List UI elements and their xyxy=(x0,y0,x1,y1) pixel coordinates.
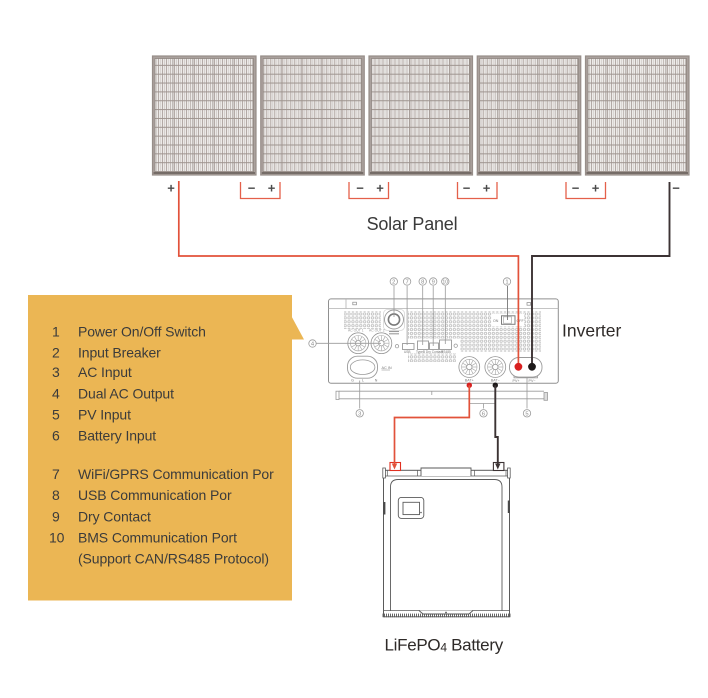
svg-text:USB: USB xyxy=(404,350,411,354)
svg-text:PV−: PV− xyxy=(529,379,536,383)
svg-text:TypeB Dry Contact: TypeB Dry Contact xyxy=(416,350,443,354)
svg-text:5: 5 xyxy=(52,407,60,423)
svg-text:Input Breaker: Input Breaker xyxy=(78,345,161,361)
svg-text:ON: ON xyxy=(493,319,499,323)
svg-text:AC OUT 1: AC OUT 1 xyxy=(348,329,364,333)
svg-text:6: 6 xyxy=(52,428,60,444)
svg-text:3: 3 xyxy=(52,364,60,380)
svg-text:USB Communication Por: USB Communication Por xyxy=(78,487,232,503)
svg-text:8: 8 xyxy=(52,487,60,503)
svg-text:−: − xyxy=(356,181,364,196)
svg-text:Battery Input: Battery Input xyxy=(78,428,156,444)
svg-text:G: G xyxy=(351,379,354,383)
svg-text:−: − xyxy=(463,181,471,196)
svg-text:−: − xyxy=(572,181,580,196)
svg-text:7: 7 xyxy=(405,280,408,286)
svg-text:N: N xyxy=(375,379,378,383)
svg-text:+: + xyxy=(376,181,384,196)
svg-text:1: 1 xyxy=(505,280,508,286)
svg-text:9: 9 xyxy=(432,280,435,286)
svg-text:8: 8 xyxy=(421,280,424,286)
svg-text:BMS Communication Port: BMS Communication Port xyxy=(78,530,237,546)
svg-text:Dry Contact: Dry Contact xyxy=(78,509,151,525)
svg-text:3: 3 xyxy=(358,411,361,417)
svg-text:+: + xyxy=(268,181,276,196)
svg-text:7: 7 xyxy=(52,466,60,482)
svg-text:6: 6 xyxy=(482,411,485,417)
svg-text:4: 4 xyxy=(52,386,60,402)
svg-text:9: 9 xyxy=(52,509,60,525)
svg-text:−: − xyxy=(248,181,256,196)
svg-text:Solar Panel: Solar Panel xyxy=(367,214,458,234)
svg-text:AC Input: AC Input xyxy=(78,364,132,380)
svg-text:PV Input: PV Input xyxy=(78,407,131,423)
svg-text:Dual AC Output: Dual AC Output xyxy=(78,386,174,402)
svg-text:AC OUT 2: AC OUT 2 xyxy=(369,329,385,333)
svg-text:2: 2 xyxy=(392,280,395,286)
svg-text:2: 2 xyxy=(52,345,60,361)
svg-text:BAT+: BAT+ xyxy=(465,379,474,383)
svg-text:L: L xyxy=(362,379,364,383)
svg-text:PV+: PV+ xyxy=(513,379,520,383)
svg-text:Power On/Off Switch: Power On/Off Switch xyxy=(78,324,206,340)
svg-text:−: − xyxy=(672,181,680,196)
svg-text:+: + xyxy=(592,181,600,196)
svg-text:(Support CAN/RS485 Protocol): (Support CAN/RS485 Protocol) xyxy=(78,551,269,567)
svg-text:5: 5 xyxy=(525,411,528,417)
svg-text:+: + xyxy=(483,181,491,196)
svg-text:BAT−: BAT− xyxy=(491,379,500,383)
svg-text:10: 10 xyxy=(49,530,65,546)
svg-text:10: 10 xyxy=(442,280,448,286)
svg-text:AC IN: AC IN xyxy=(382,366,392,370)
svg-text:1: 1 xyxy=(52,324,60,340)
svg-text:Inverter: Inverter xyxy=(562,321,621,341)
svg-text:+: + xyxy=(167,181,175,196)
svg-text:WiFi/GPRS Communication Por: WiFi/GPRS Communication Por xyxy=(78,466,274,482)
svg-text:RS485: RS485 xyxy=(441,350,451,354)
svg-text:LiFePO4 Battery: LiFePO4 Battery xyxy=(385,636,504,655)
